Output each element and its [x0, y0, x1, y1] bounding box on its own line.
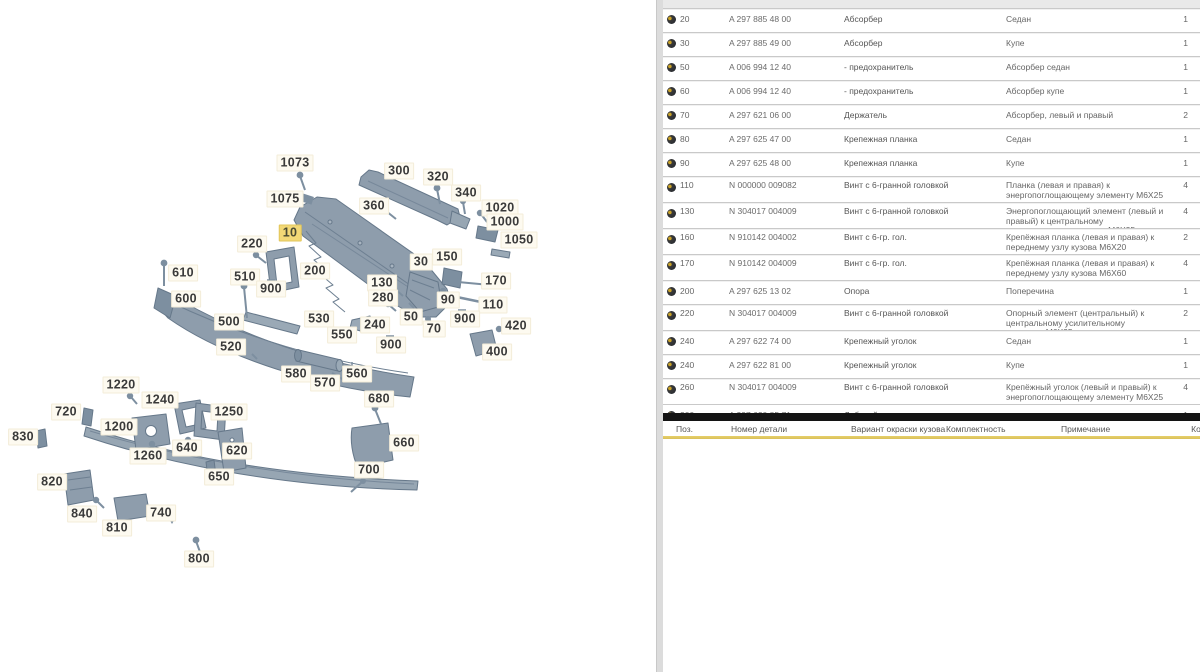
table-row[interactable]: 110 N 000000 009082 Винт с 6-гранной гол… [663, 176, 1200, 202]
table-row[interactable]: 260 N 304017 004009 Винт с 6-гранной гол… [663, 378, 1200, 404]
row-qty: 4 [1164, 379, 1188, 393]
row-name: Винт с 6-гранной головкой [844, 379, 994, 393]
row-note: Купе [1006, 153, 1164, 169]
row-pos: 240 [680, 331, 722, 347]
table-row[interactable]: 240 A 297 622 81 00 Крепежный уголок Куп… [663, 354, 1200, 378]
cart-icon[interactable] [667, 209, 676, 218]
row-note: Крепёжная планка (левая и правая) к пере… [1006, 255, 1164, 278]
diagram-label-810[interactable]: 810 [102, 520, 132, 537]
part-sensor-820[interactable] [64, 470, 94, 505]
row-name: Крепежная планка [844, 153, 994, 169]
row-part-number: A 297 885 49 00 [729, 33, 841, 49]
cart-icon[interactable] [667, 385, 676, 394]
diagram-label-200[interactable]: 200 [300, 263, 330, 280]
row-name: Винт с 6-гр. гол. [844, 255, 994, 269]
parts-table: 20 A 297 885 48 00 Абсорбер Седан 1 30 A… [663, 9, 1200, 404]
cart-icon[interactable] [667, 39, 676, 48]
row-qty: 1 [1164, 81, 1188, 97]
diagram-label-340[interactable]: 340 [451, 185, 481, 202]
row-qty: 1 [1164, 405, 1188, 413]
header-qty: Кол. [1191, 424, 1200, 434]
row-name: Крепежный уголок [844, 355, 994, 371]
row-note: Купе [1006, 33, 1164, 49]
diagram-label-300[interactable]: 300 [384, 163, 414, 180]
row-qty: 1 [1164, 331, 1188, 347]
diagram-label-570[interactable]: 570 [310, 375, 340, 392]
diagram-label-900[interactable]: 900 [256, 281, 286, 298]
row-pos: 300 [680, 405, 722, 413]
diagram-label-660[interactable]: 660 [389, 435, 419, 452]
diagram-label-650[interactable]: 650 [204, 469, 234, 486]
diagram-label-620[interactable]: 620 [222, 443, 252, 460]
diagram-label-90[interactable]: 90 [437, 292, 460, 309]
row-pos: 110 [680, 177, 722, 191]
row-pos: 90 [680, 153, 722, 169]
part-clip-1050[interactable] [491, 249, 510, 258]
row-pos: 60 [680, 81, 722, 97]
table-row[interactable]: 30 A 297 885 49 00 Абсорбер Купе 1 [663, 32, 1200, 56]
empty-area [663, 439, 1200, 672]
diagram-label-640[interactable]: 640 [172, 440, 202, 457]
diagram-label-1200[interactable]: 1200 [100, 419, 137, 436]
row-note: Крепёжный уголок (левый и правый) к энер… [1006, 379, 1164, 402]
row-part-number: A 006 994 12 40 [729, 81, 841, 97]
diagram-label-820[interactable]: 820 [37, 474, 67, 491]
diagram-label-560[interactable]: 560 [342, 366, 372, 383]
diagram-label-70[interactable]: 70 [423, 321, 446, 338]
cart-icon[interactable] [667, 135, 676, 144]
diagram-label-170[interactable]: 170 [481, 273, 511, 290]
diagram-label-1260[interactable]: 1260 [129, 448, 166, 465]
row-qty: 4 [1164, 203, 1188, 217]
row-pos: 70 [680, 105, 722, 121]
diagram-label-1073[interactable]: 1073 [276, 155, 313, 172]
row-pos: 20 [680, 9, 722, 25]
row-part-number: N 304017 004009 [729, 305, 841, 319]
row-note: Абсорбер купе [1006, 81, 1164, 97]
row-qty: 1 [1164, 9, 1188, 25]
row-name: Винт с 6-гранной головкой [844, 305, 994, 319]
diagram-label-110[interactable]: 110 [478, 297, 507, 314]
row-name: Крепежный уголок [844, 331, 994, 347]
cart-icon[interactable] [667, 411, 676, 413]
diagram-label-700[interactable]: 700 [354, 462, 384, 479]
table-row[interactable]: 220 N 304017 004009 Винт с 6-гранной гол… [663, 304, 1200, 330]
diagram-label-50[interactable]: 50 [400, 309, 423, 326]
row-pos: 170 [680, 255, 722, 269]
row-qty: 1 [1164, 281, 1188, 297]
cart-icon[interactable] [667, 15, 676, 24]
row-note: Крепёжная планка (левая и правая) к пере… [1006, 229, 1164, 252]
diagram-label-530[interactable]: 530 [304, 311, 334, 328]
row-qty: 1 [1164, 153, 1188, 169]
row-name: Винт с 6-гранной головкой [844, 177, 994, 191]
row-name: - предохранитель [844, 57, 994, 73]
row-part-number: A 297 620 85 71 [729, 405, 841, 413]
table-row[interactable]: 90 A 297 625 48 00 Крепежная планка Купе… [663, 152, 1200, 176]
parts-diagram: 1073107530032034036010201000105022010200… [0, 0, 656, 672]
row-part-number: A 006 994 12 40 [729, 57, 841, 73]
cart-icon[interactable] [667, 63, 676, 72]
row-qty: 2 [1164, 105, 1188, 121]
diagram-label-740[interactable]: 740 [146, 505, 176, 522]
row-note: Седан [1006, 129, 1164, 145]
diagram-label-830[interactable]: 830 [8, 429, 38, 446]
diagram-label-420[interactable]: 420 [501, 318, 531, 335]
cart-icon[interactable] [667, 111, 676, 120]
row-qty: 1 [1164, 57, 1188, 73]
table-row-partial[interactable]: 300 A 297 620 85 71 Лобовой элемент 1 [663, 404, 1200, 413]
diagram-label-1050[interactable]: 1050 [500, 232, 537, 249]
table-row[interactable]: 130 N 304017 004009 Винт с 6-гранной гол… [663, 202, 1200, 228]
row-qty: 1 [1164, 33, 1188, 49]
row-pos: 240 [680, 355, 722, 371]
table-row[interactable]: 170 N 910142 004009 Винт с 6-гр. гол. Кр… [663, 254, 1200, 280]
part-clip-720[interactable] [82, 408, 93, 426]
cart-icon[interactable] [667, 87, 676, 96]
cart-icon[interactable] [667, 159, 676, 168]
diagram-label-800[interactable]: 800 [184, 551, 214, 568]
cart-icon[interactable] [667, 311, 676, 320]
row-part-number: A 297 625 13 02 [729, 281, 841, 297]
header-pos: Поз. [676, 424, 693, 434]
table-row[interactable]: 240 A 297 622 74 00 Крепежный уголок Сед… [663, 330, 1200, 354]
cart-icon[interactable] [667, 287, 676, 296]
diagram-label-520[interactable]: 520 [216, 339, 246, 356]
row-part-number: N 304017 004009 [729, 379, 841, 393]
diagram-label-720[interactable]: 720 [51, 404, 81, 421]
table-row[interactable]: 60 A 006 994 12 40 - предохранитель Абсо… [663, 80, 1200, 104]
row-pos: 50 [680, 57, 722, 73]
cart-icon[interactable] [667, 361, 676, 370]
diagram-label-150[interactable]: 150 [432, 249, 462, 266]
row-part-number: A 297 621 06 00 [729, 105, 841, 121]
row-qty: 1 [1164, 129, 1188, 145]
parts-table-panel: 20 A 297 885 48 00 Абсорбер Седан 1 30 A… [663, 0, 1200, 672]
table-row[interactable]: 160 N 910142 004002 Винт с 6-гр. гол. Кр… [663, 228, 1200, 254]
row-name: Абсорбер [844, 9, 994, 25]
diagram-label-1240[interactable]: 1240 [141, 392, 178, 409]
cart-icon[interactable] [667, 235, 676, 244]
header-part-number: Номер детали [731, 424, 787, 434]
row-part-number: N 000000 009082 [729, 177, 841, 191]
diagram-label-840[interactable]: 840 [67, 506, 97, 523]
row-pos: 130 [680, 203, 722, 217]
header-note: Примечание [1061, 424, 1110, 434]
cart-icon[interactable] [667, 183, 676, 192]
row-name: Винт с 6-гр. гол. [844, 229, 994, 243]
row-name: Абсорбер [844, 33, 994, 49]
diagram-label-360[interactable]: 360 [359, 198, 389, 215]
row-pos: 260 [680, 379, 722, 393]
diagram-label-1075[interactable]: 1075 [266, 191, 303, 208]
diagram-label-580[interactable]: 580 [281, 366, 311, 383]
table-row[interactable]: 20 A 297 885 48 00 Абсорбер Седан 1 [663, 9, 1200, 32]
table-row[interactable]: 80 A 297 625 47 00 Крепежная планка Седа… [663, 128, 1200, 152]
diagram-label-610[interactable]: 610 [168, 265, 198, 282]
row-part-number: A 297 622 74 00 [729, 331, 841, 347]
row-note: Планка (левая и правая) к энергопоглощаю… [1006, 177, 1164, 200]
row-note: Седан [1006, 331, 1164, 347]
diagram-label-220[interactable]: 220 [237, 236, 267, 253]
row-note: Купе [1006, 355, 1164, 371]
row-pos: 80 [680, 129, 722, 145]
row-pos: 200 [680, 281, 722, 297]
diagram-label-1220[interactable]: 1220 [102, 377, 139, 394]
row-name: Держатель [844, 105, 994, 121]
diagram-label-320[interactable]: 320 [423, 169, 453, 186]
diagram-label-280[interactable]: 280 [368, 290, 398, 307]
row-note: Поперечина [1006, 281, 1164, 297]
section-divider-bar [663, 413, 1200, 421]
diagram-label-1250[interactable]: 1250 [210, 404, 247, 421]
row-note: Абсорбер, левый и правый [1006, 105, 1164, 121]
table-row[interactable]: 70 A 297 621 06 00 Держатель Абсорбер, л… [663, 104, 1200, 128]
diagram-label-550[interactable]: 550 [327, 327, 357, 344]
diagram-label-500[interactable]: 500 [214, 314, 244, 331]
diagram-label-900[interactable]: 900 [450, 311, 480, 328]
diagram-label-10[interactable]: 10 [279, 225, 302, 242]
row-note: Абсорбер седан [1006, 57, 1164, 73]
table-row[interactable]: 50 A 006 994 12 40 - предохранитель Абсо… [663, 56, 1200, 80]
row-qty: 1 [1164, 355, 1188, 371]
part-strut-530[interactable] [243, 312, 300, 334]
row-part-number: A 297 625 47 00 [729, 129, 841, 145]
row-name: - предохранитель [844, 81, 994, 97]
row-qty: 2 [1164, 229, 1188, 243]
row-part-number: N 304017 004009 [729, 203, 841, 217]
diagram-label-680[interactable]: 680 [364, 391, 394, 408]
diagram-label-30[interactable]: 30 [410, 254, 433, 271]
row-name: Лобовой элемент [844, 405, 994, 413]
part-bracket-810[interactable] [114, 494, 150, 521]
header-paint-variant: Вариант окраски кузова [851, 424, 945, 434]
cart-icon[interactable] [667, 261, 676, 270]
header-completeness: Комплектность [946, 424, 1006, 434]
row-name: Опора [844, 281, 994, 297]
diagram-label-400[interactable]: 400 [482, 344, 512, 361]
diagram-label-240[interactable]: 240 [360, 317, 390, 334]
row-pos: 220 [680, 305, 722, 319]
row-note: Седан [1006, 9, 1164, 25]
row-name: Крепежная планка [844, 129, 994, 145]
second-table-header: Поз. Номер детали Вариант окраски кузова… [663, 421, 1200, 436]
row-part-number: A 297 625 48 00 [729, 153, 841, 169]
row-name: Винт с 6-гранной головкой [844, 203, 994, 217]
row-pos: 30 [680, 33, 722, 49]
row-qty: 2 [1164, 305, 1188, 319]
row-part-number: A 297 622 81 00 [729, 355, 841, 371]
table-row[interactable]: 200 A 297 625 13 02 Опора Поперечина 1 [663, 280, 1200, 304]
row-pos: 160 [680, 229, 722, 243]
row-part-number: A 297 885 48 00 [729, 9, 841, 25]
row-qty: 4 [1164, 177, 1188, 191]
diagram-label-900[interactable]: 900 [376, 337, 406, 354]
epc-window: 1073107530032034036010201000105022010200… [0, 0, 1200, 672]
row-part-number: N 910142 004002 [729, 229, 841, 243]
cart-icon[interactable] [667, 337, 676, 346]
diagram-label-1000[interactable]: 1000 [486, 214, 523, 231]
row-part-number: N 910142 004009 [729, 255, 841, 269]
row-qty: 4 [1164, 255, 1188, 269]
table-top-strip [663, 0, 1200, 9]
diagram-label-600[interactable]: 600 [171, 291, 201, 308]
